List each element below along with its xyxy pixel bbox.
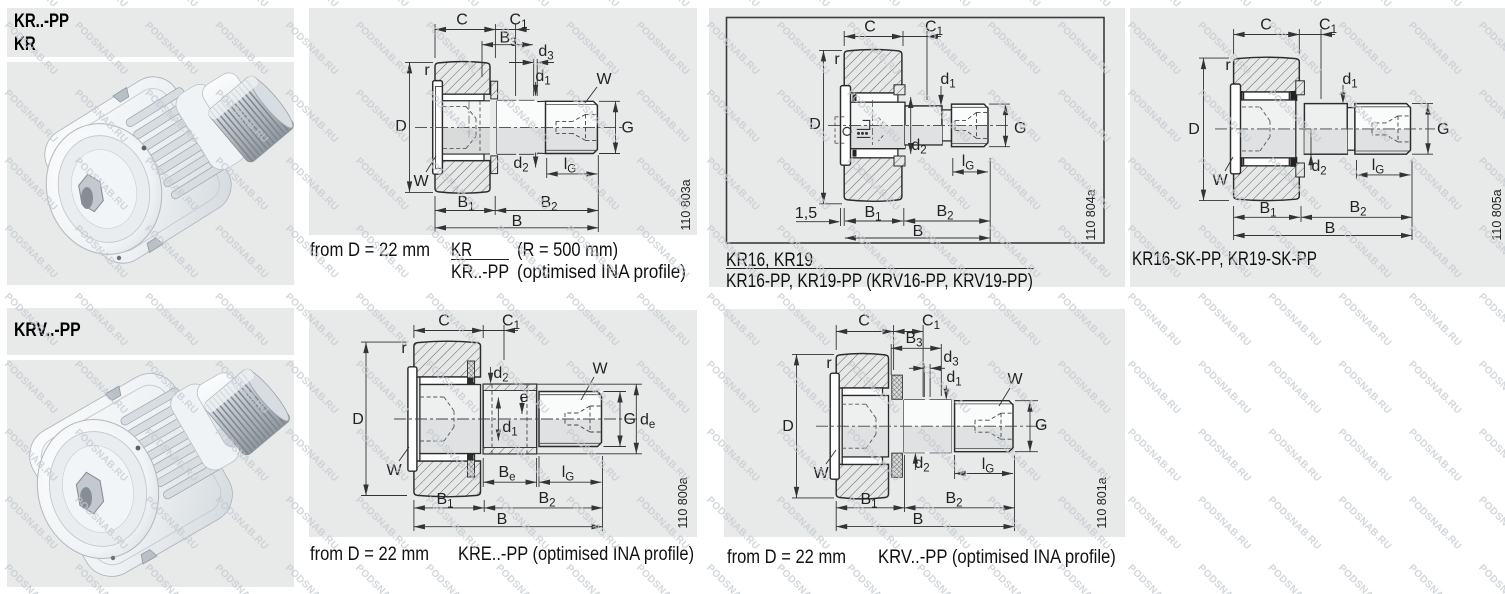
svg-text:D: D	[809, 116, 821, 133]
svg-text:r: r	[826, 355, 832, 372]
svg-text:PODSNAB.RU: PODSNAB.RU	[1336, 291, 1393, 348]
svg-text:PODSNAB.RU: PODSNAB.RU	[1406, 427, 1463, 484]
svg-text:PODSNAB.RU: PODSNAB.RU	[423, 563, 480, 594]
svg-text:G: G	[1014, 120, 1026, 137]
svg-text:PODSNAB.RU: PODSNAB.RU	[1336, 359, 1393, 416]
svg-text:PODSNAB.RU: PODSNAB.RU	[1125, 291, 1182, 348]
svg-text:G: G	[624, 411, 636, 428]
svg-text:B: B	[913, 511, 924, 528]
svg-text:PODSNAB.RU: PODSNAB.RU	[1125, 427, 1182, 484]
svg-text:PODSNAB.RU: PODSNAB.RU	[1125, 563, 1182, 594]
svg-text:C: C	[1260, 17, 1272, 34]
svg-text:1,5: 1,5	[795, 205, 817, 222]
svg-text:r: r	[424, 62, 430, 79]
svg-text:PODSNAB.RU: PODSNAB.RU	[1476, 427, 1505, 484]
svg-text:W: W	[386, 462, 402, 479]
svg-text:G: G	[622, 120, 634, 137]
svg-text:G: G	[1437, 121, 1449, 138]
svg-text:PODSNAB.RU: PODSNAB.RU	[1336, 427, 1393, 484]
svg-text:PODSNAB.RU: PODSNAB.RU	[1336, 563, 1393, 594]
svg-text:PODSNAB.RU: PODSNAB.RU	[1195, 359, 1252, 416]
svg-text:PODSNAB.RU: PODSNAB.RU	[1476, 563, 1505, 594]
svg-text:PODSNAB.RU: PODSNAB.RU	[1125, 495, 1182, 552]
svg-text:PODSNAB.RU: PODSNAB.RU	[1406, 359, 1463, 416]
svg-text:PODSNAB.RU: PODSNAB.RU	[1125, 359, 1182, 416]
svg-text:PODSNAB.RU: PODSNAB.RU	[1195, 495, 1252, 552]
svg-text:PODSNAB.RU: PODSNAB.RU	[1195, 291, 1252, 348]
svg-text:B: B	[913, 223, 924, 240]
svg-text:PODSNAB.RU: PODSNAB.RU	[1406, 291, 1463, 348]
svg-text:PODSNAB.RU: PODSNAB.RU	[1266, 563, 1323, 594]
svg-text:B: B	[512, 213, 523, 230]
svg-text:D: D	[395, 118, 407, 135]
svg-text:PODSNAB.RU: PODSNAB.RU	[1266, 427, 1323, 484]
svg-text:PODSNAB.RU: PODSNAB.RU	[493, 563, 550, 594]
svg-text:PODSNAB.RU: PODSNAB.RU	[1266, 359, 1323, 416]
svg-text:e: e	[520, 389, 529, 406]
svg-text:PODSNAB.RU: PODSNAB.RU	[1406, 563, 1463, 594]
svg-text:W: W	[596, 71, 612, 88]
svg-text:W: W	[813, 465, 829, 482]
svg-text:W: W	[1007, 371, 1023, 388]
svg-text:W: W	[592, 361, 608, 378]
svg-text:B: B	[1325, 220, 1336, 237]
svg-text:C: C	[864, 19, 876, 36]
svg-text:C: C	[456, 12, 468, 29]
svg-text:PODSNAB.RU: PODSNAB.RU	[1476, 359, 1505, 416]
svg-text:PODSNAB.RU: PODSNAB.RU	[1476, 291, 1505, 348]
svg-text:D: D	[782, 418, 794, 435]
svg-text:r: r	[1225, 57, 1231, 74]
svg-text:G: G	[1035, 417, 1047, 434]
svg-text:110 804a: 110 804a	[1084, 189, 1098, 240]
svg-text:PODSNAB.RU: PODSNAB.RU	[564, 563, 621, 594]
svg-text:PODSNAB.RU: PODSNAB.RU	[353, 563, 410, 594]
svg-text:r: r	[834, 51, 840, 68]
svg-text:110 803a: 110 803a	[679, 179, 693, 230]
svg-text:110 801a: 110 801a	[1095, 477, 1109, 528]
svg-text:PODSNAB.RU: PODSNAB.RU	[1195, 427, 1252, 484]
svg-text:PODSNAB.RU: PODSNAB.RU	[1266, 291, 1323, 348]
svg-text:110 800a: 110 800a	[676, 477, 690, 528]
svg-text:C: C	[438, 313, 450, 330]
svg-text:PODSNAB.RU: PODSNAB.RU	[634, 563, 691, 594]
svg-text:110 805a: 110 805a	[1490, 189, 1504, 240]
svg-text:D: D	[1188, 121, 1200, 138]
svg-text:PODSNAB.RU: PODSNAB.RU	[1266, 495, 1323, 552]
svg-text:C: C	[858, 313, 870, 330]
svg-text:PODSNAB.RU: PODSNAB.RU	[1336, 495, 1393, 552]
svg-text:PODSNAB.RU: PODSNAB.RU	[1476, 495, 1505, 552]
svg-text:B: B	[497, 511, 508, 528]
svg-text:W: W	[1212, 172, 1228, 189]
svg-text:W: W	[413, 173, 429, 190]
svg-text:PODSNAB.RU: PODSNAB.RU	[1195, 563, 1252, 594]
svg-text:D: D	[352, 411, 364, 428]
svg-text:PODSNAB.RU: PODSNAB.RU	[1406, 495, 1463, 552]
